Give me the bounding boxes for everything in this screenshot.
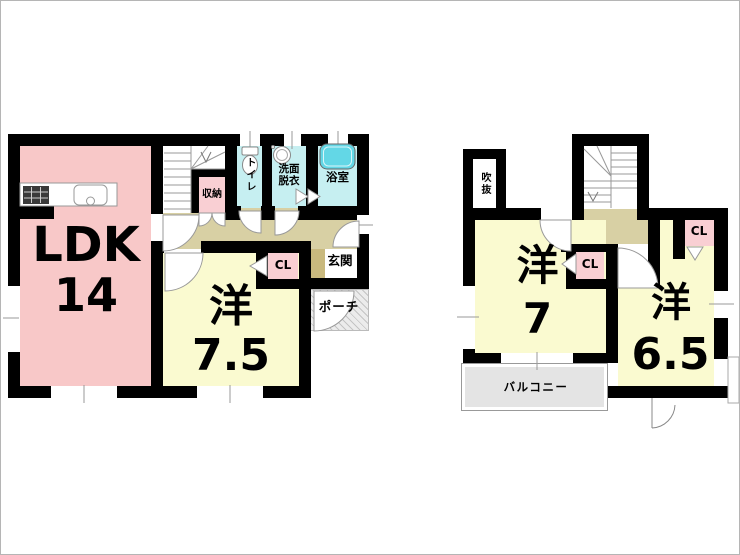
ldk-label: LDK	[21, 219, 151, 271]
wall	[648, 208, 660, 288]
western-room-7-5-label: 洋	[166, 283, 296, 331]
wall	[572, 134, 584, 220]
wall	[463, 353, 618, 363]
storage-label: 収納	[197, 187, 227, 201]
ldk-size-label: 14	[21, 269, 151, 321]
wall	[673, 246, 685, 259]
western-room-6-5-label: 洋	[621, 279, 721, 327]
washroom-label: 洗面 脱衣	[270, 158, 308, 194]
staircase-2f	[584, 146, 637, 209]
closet-2f-right-label: CL	[683, 223, 715, 241]
western-room-6-5-size: 6.5	[618, 329, 723, 381]
floorplan-canvas: LDK 14 洋 7.5 収納 トイレ 洗面 脱衣 浴室 CL 玄関 ポーチ 洋…	[0, 0, 740, 555]
toilet-label: トイレ	[241, 148, 258, 202]
bath-label: 浴室	[318, 169, 357, 185]
porch-label: ポーチ	[309, 298, 369, 316]
balcony-label: バルコニー	[471, 378, 601, 396]
closet-2f-mid-label: CL	[574, 256, 606, 274]
wall	[606, 386, 728, 398]
void-label: 吹抜	[472, 161, 497, 207]
wall	[606, 244, 618, 363]
wall	[463, 208, 475, 353]
closet-1f-label: CL	[267, 257, 299, 275]
entrance-label: 玄関	[321, 252, 359, 269]
western-room-7-size: 7	[475, 293, 600, 345]
western-room-7-5-size: 7.5	[166, 331, 296, 381]
